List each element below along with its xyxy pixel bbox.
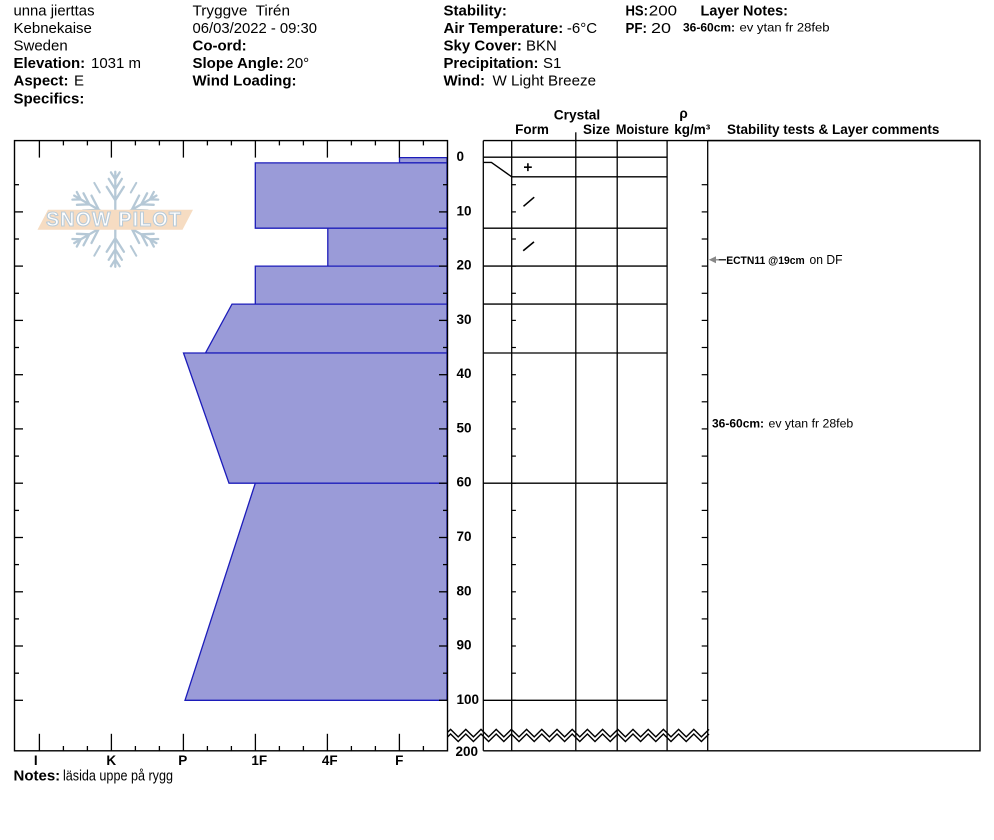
svg-text:Elevation:1031 m: Elevation:1031 m xyxy=(14,55,142,72)
svg-text:90: 90 xyxy=(457,638,472,653)
svg-text:on DF: on DF xyxy=(810,252,843,267)
svg-text:Form: Form xyxy=(515,122,549,137)
svg-text:Kebnekaise: Kebnekaise xyxy=(14,20,92,37)
svg-text:20: 20 xyxy=(457,258,472,273)
svg-text:PF:20: PF:20 xyxy=(626,20,672,37)
svg-text:100: 100 xyxy=(457,692,480,707)
svg-text:P: P xyxy=(178,753,187,768)
svg-text:Wind:W Light Breeze: Wind:W Light Breeze xyxy=(444,73,597,90)
svg-text:Wind Loading:: Wind Loading: xyxy=(193,73,297,90)
svg-text:Air Temperature:-6°C: Air Temperature:-6°C xyxy=(444,20,598,37)
svg-text:I: I xyxy=(34,753,38,768)
svg-text:36-60cm:: 36-60cm: xyxy=(712,416,764,430)
svg-text:36-60cm:: 36-60cm: xyxy=(683,20,735,34)
svg-text:F: F xyxy=(395,753,403,768)
svg-text:06/03/2022 - 09:30: 06/03/2022 - 09:30 xyxy=(193,20,318,37)
svg-text:Slope Angle:20°: Slope Angle:20° xyxy=(193,55,310,72)
svg-text:4F: 4F xyxy=(322,753,338,768)
svg-text:Aspect:E: Aspect:E xyxy=(14,73,85,90)
svg-text:10: 10 xyxy=(457,203,472,218)
svg-text:Crystal: Crystal xyxy=(554,108,601,123)
svg-text:80: 80 xyxy=(457,583,472,598)
svg-text:Specifics:: Specifics: xyxy=(14,90,85,107)
svg-text:60: 60 xyxy=(457,475,472,490)
svg-text:200: 200 xyxy=(456,744,479,759)
svg-text:0: 0 xyxy=(457,149,465,164)
svg-text:50: 50 xyxy=(457,420,472,435)
svg-text:ev ytan fr 28feb: ev ytan fr 28feb xyxy=(769,417,854,431)
svg-text:ECTN11 @19cm: ECTN11 @19cm xyxy=(726,255,805,267)
svg-text:Size: Size xyxy=(583,122,611,137)
svg-text:kg/m³: kg/m³ xyxy=(674,122,711,137)
svg-text:HS:200: HS:200 xyxy=(626,3,678,20)
svg-text:ev ytan fr 28feb: ev ytan fr 28feb xyxy=(740,21,830,35)
svg-text:Co-ord:: Co-ord: xyxy=(193,38,247,55)
svg-text:läsida uppe på rygg: läsida uppe på rygg xyxy=(63,767,173,784)
svg-text:40: 40 xyxy=(457,366,472,381)
svg-text:Moisture: Moisture xyxy=(616,122,669,137)
svg-text:1F: 1F xyxy=(251,753,267,768)
svg-text:Tryggve Tirén: Tryggve Tirén xyxy=(193,3,291,20)
svg-text:Sky Cover:BKN: Sky Cover:BKN xyxy=(444,38,557,55)
svg-text:SNOW PILOT: SNOW PILOT xyxy=(46,208,182,231)
svg-text:unna jierttas: unna jierttas xyxy=(14,3,95,20)
svg-text:ρ: ρ xyxy=(679,106,687,121)
svg-text:70: 70 xyxy=(457,529,472,544)
svg-text:K: K xyxy=(106,753,116,768)
svg-text:Stability:: Stability: xyxy=(444,3,507,20)
svg-text:30: 30 xyxy=(457,312,472,327)
svg-text:Precipitation:S1: Precipitation:S1 xyxy=(444,55,562,72)
svg-text:Notes:: Notes: xyxy=(14,767,61,784)
svg-text:Layer Notes:: Layer Notes: xyxy=(701,3,789,20)
svg-text:Stability tests & Layer commen: Stability tests & Layer comments xyxy=(727,122,939,137)
svg-text:Sweden: Sweden xyxy=(14,38,68,55)
